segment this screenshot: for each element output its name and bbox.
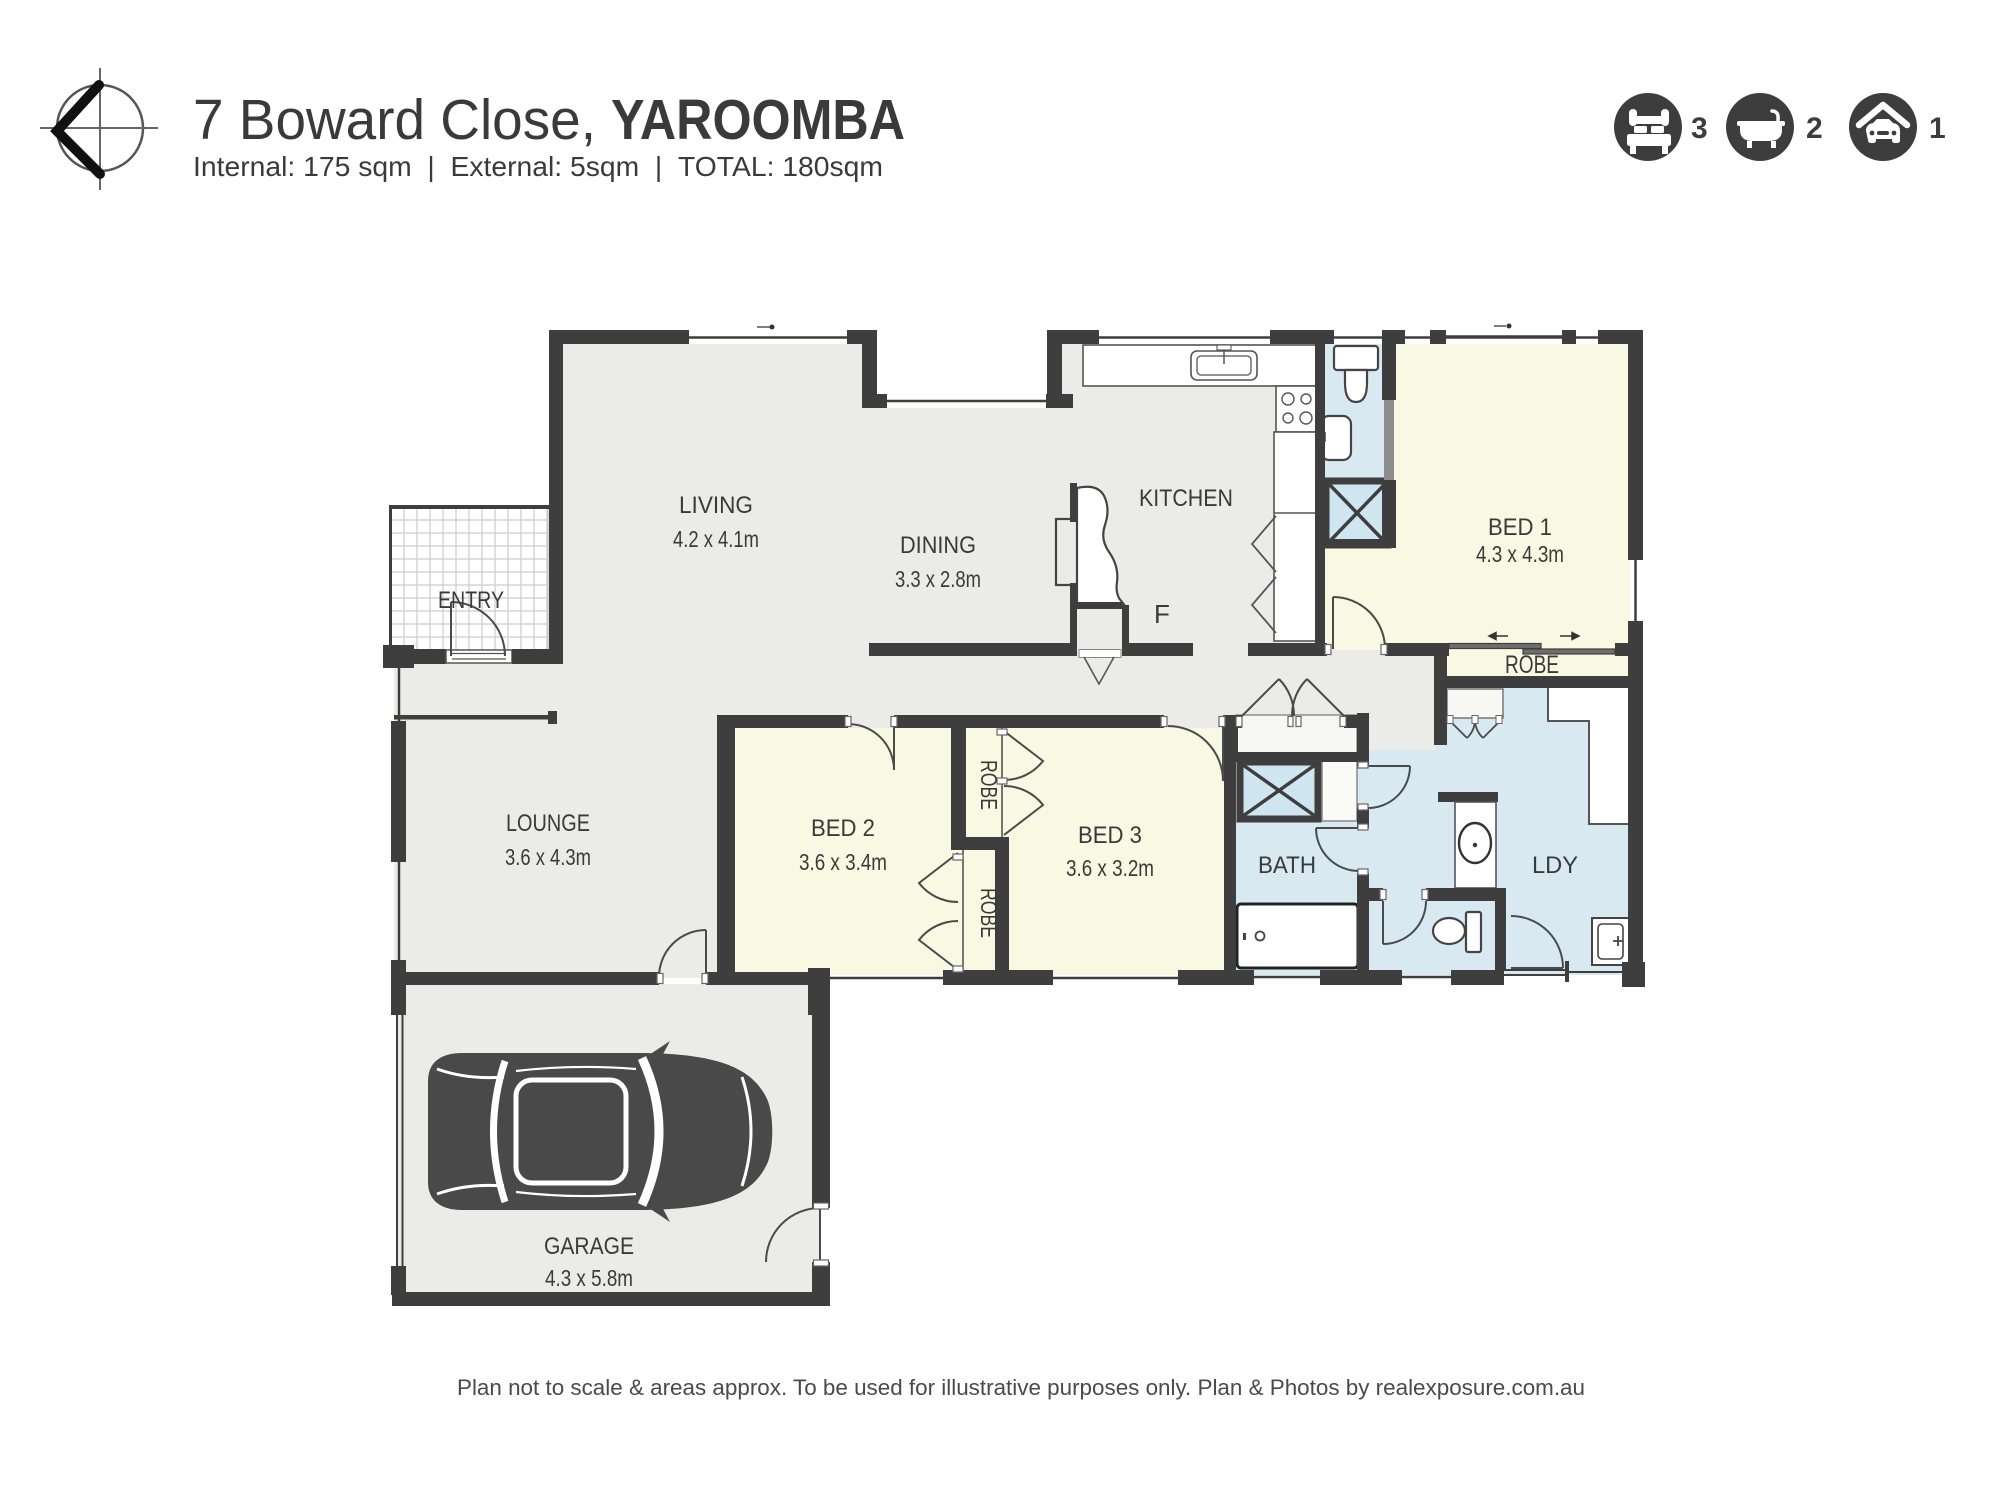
svg-text:ROBE: ROBE (976, 888, 1002, 938)
svg-text:7 Boward Close,: 7 Boward Close, (193, 88, 596, 152)
svg-text:KITCHEN: KITCHEN (1139, 485, 1233, 512)
svg-text:GARAGE: GARAGE (544, 1233, 634, 1260)
svg-text:3.6 x 3.2m: 3.6 x 3.2m (1066, 855, 1154, 881)
svg-text:LDY: LDY (1532, 852, 1578, 879)
svg-text:BATH: BATH (1258, 852, 1316, 879)
svg-text:Plan not to scale & areas appr: Plan not to scale & areas approx. To be … (457, 1375, 1585, 1400)
svg-text:ENTRY: ENTRY (438, 587, 504, 614)
svg-text:1: 1 (1929, 112, 1946, 145)
svg-text:DINING: DINING (900, 532, 976, 559)
svg-text:2: 2 (1806, 112, 1823, 145)
svg-text:BED 1: BED 1 (1488, 514, 1552, 541)
svg-text:3.6 x 4.3m: 3.6 x 4.3m (505, 844, 591, 870)
svg-text:3: 3 (1691, 112, 1708, 145)
svg-text:ROBE: ROBE (976, 760, 1002, 810)
svg-text:4.2 x 4.1m: 4.2 x 4.1m (673, 526, 759, 552)
svg-text:YAROOMBA: YAROOMBA (611, 88, 905, 152)
svg-text:3.3 x 2.8m: 3.3 x 2.8m (895, 566, 981, 592)
svg-text:BED 3: BED 3 (1078, 822, 1142, 849)
svg-text:ROBE: ROBE (1505, 651, 1559, 679)
svg-text:F: F (1154, 599, 1170, 629)
svg-text:BED 2: BED 2 (811, 815, 875, 842)
svg-text:3.6 x 3.4m: 3.6 x 3.4m (799, 849, 887, 875)
svg-text:Internal: 175 sqm | External: Internal: 175 sqm | External: 5sqm | TOT… (193, 151, 883, 182)
svg-text:LIVING: LIVING (679, 492, 753, 519)
svg-text:4.3 x 5.8m: 4.3 x 5.8m (545, 1265, 633, 1291)
svg-text:4.3 x 4.3m: 4.3 x 4.3m (1476, 541, 1564, 567)
svg-text:LOUNGE: LOUNGE (506, 810, 590, 837)
